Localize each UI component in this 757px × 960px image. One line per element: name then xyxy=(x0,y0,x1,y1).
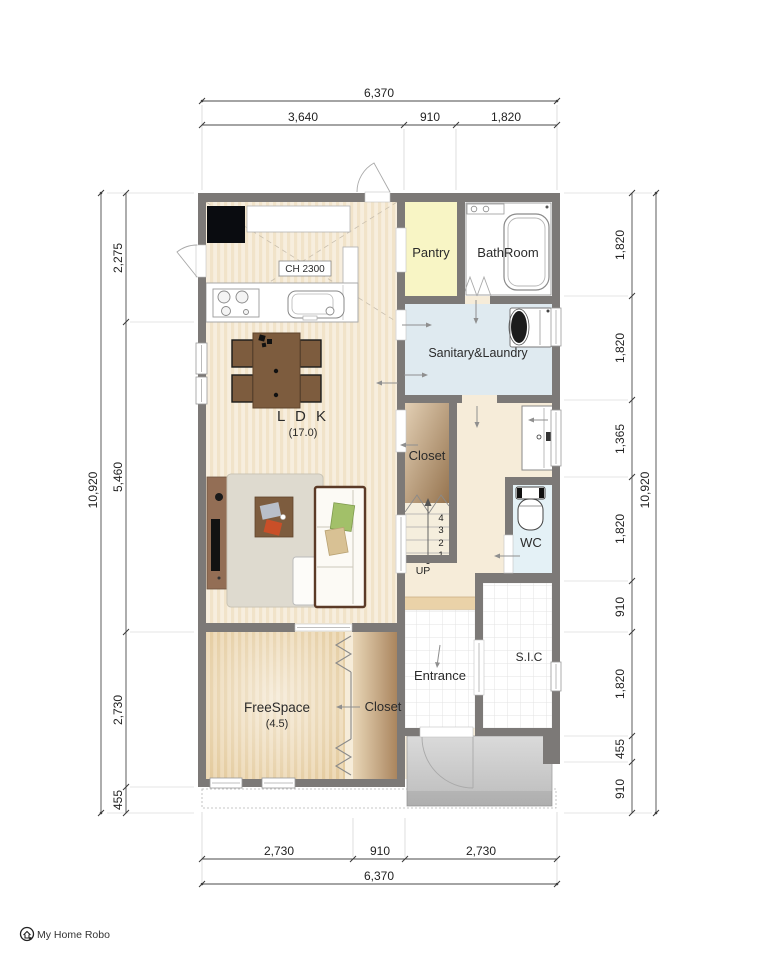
door-kitchen-back xyxy=(365,192,390,202)
wc-label: WC xyxy=(520,535,542,550)
porch xyxy=(407,736,552,806)
dim-bottom-overall: 6,370 xyxy=(364,869,394,883)
stair-number: 2 xyxy=(438,538,443,549)
stair-number: 3 xyxy=(438,525,443,536)
ceiling-height-label: CH 2300 xyxy=(285,264,325,275)
dimension-right: 1,820 1,820 1,365 1,820 910 1,820 455 91… xyxy=(564,190,659,816)
dim-right-seg: 910 xyxy=(613,597,627,617)
dim-right-seg: 1,365 xyxy=(613,424,627,454)
dim-left-seg: 2,730 xyxy=(111,695,125,725)
closet-bottom-label: Closet xyxy=(365,699,402,714)
tan-cushion xyxy=(325,527,348,555)
bathroom-label: BathRoom xyxy=(477,245,538,260)
closet-mid-label: Closet xyxy=(409,448,446,463)
ldk-label: L D K xyxy=(277,408,329,425)
dim-bottom-seg: 2,730 xyxy=(264,844,294,858)
floor-plan-page: CH 2300 xyxy=(0,0,757,960)
dim-right-seg: 1,820 xyxy=(613,669,627,699)
dimension-bottom: 2,730 910 2,730 6,370 xyxy=(199,812,560,887)
ldk-area-label: (17.0) xyxy=(289,427,318,439)
opening-pantry xyxy=(396,228,406,272)
toilet xyxy=(516,487,545,530)
dim-right-seg: 1,820 xyxy=(613,514,627,544)
logo: My Home Robo xyxy=(21,928,111,942)
dim-top-seg: 1,820 xyxy=(491,110,521,124)
bath-counter xyxy=(467,204,504,214)
vanity xyxy=(522,406,553,470)
dim-right-seg: 455 xyxy=(613,739,627,759)
dim-bottom-seg: 910 xyxy=(370,844,390,858)
logo-text: My Home Robo xyxy=(37,929,110,941)
dim-bottom-seg: 2,730 xyxy=(466,844,496,858)
dim-top-seg: 910 xyxy=(420,110,440,124)
tv xyxy=(211,519,220,571)
entrance-step-strip xyxy=(405,597,475,610)
front-door xyxy=(420,727,473,737)
dim-right-overall: 10,920 xyxy=(638,471,652,508)
coffee-table xyxy=(255,497,293,537)
dim-right-seg: 1,820 xyxy=(613,230,627,260)
sic-label: S.I.C xyxy=(516,650,543,664)
sanitary-label: Sanitary&Laundry xyxy=(428,346,528,360)
stove xyxy=(213,289,259,317)
dim-top-seg: 3,640 xyxy=(288,110,318,124)
door-wc xyxy=(504,535,513,573)
dimension-top: 6,370 3,640 910 1,820 xyxy=(199,86,560,190)
freespace-area-label: (4.5) xyxy=(266,718,289,730)
sink xyxy=(288,291,344,320)
dim-left-seg: 455 xyxy=(111,790,125,810)
dim-left-seg: 2,275 xyxy=(111,243,125,273)
up-label: UP xyxy=(416,565,431,577)
dim-left-overall: 10,920 xyxy=(86,471,100,508)
door-kitchen-side xyxy=(196,245,206,277)
floor-plan-svg: CH 2300 xyxy=(0,0,757,960)
stair-number: 4 xyxy=(438,513,443,524)
dim-right-seg: 910 xyxy=(613,779,627,799)
pantry-label: Pantry xyxy=(412,245,450,260)
washing-machine xyxy=(509,308,552,347)
entrance-label: Entrance xyxy=(414,668,466,683)
dim-top-overall: 6,370 xyxy=(364,86,394,100)
dim-left-seg: 5,460 xyxy=(111,462,125,492)
freespace-label: FreeSpace xyxy=(244,700,310,715)
dim-right-seg: 1,820 xyxy=(613,333,627,363)
dimension-left: 2,275 5,460 2,730 455 10,920 xyxy=(86,190,194,816)
refrigerator xyxy=(207,206,245,243)
green-cushion xyxy=(330,503,354,532)
